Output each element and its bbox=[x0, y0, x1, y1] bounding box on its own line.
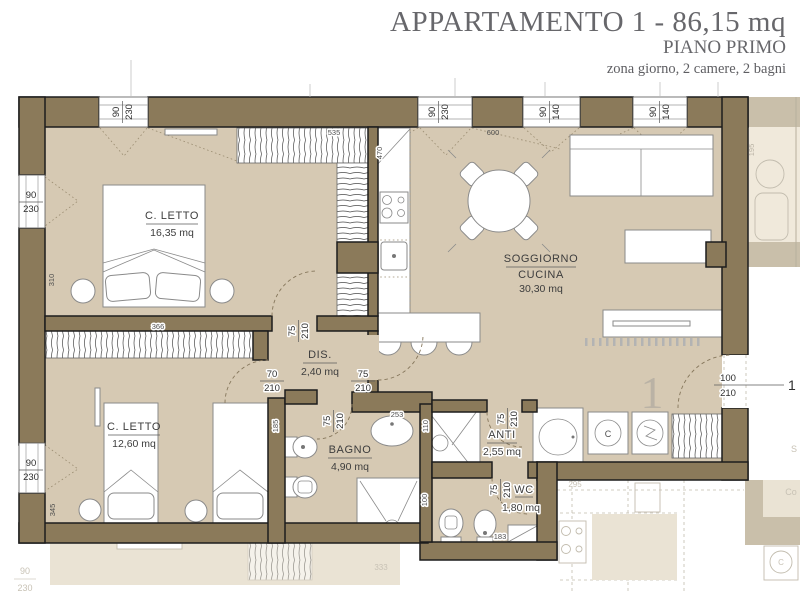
svg-text:C. LETTO: C. LETTO bbox=[145, 210, 199, 222]
pillow bbox=[217, 493, 263, 519]
svg-text:210: 210 bbox=[355, 383, 371, 394]
dim-wardrobe-bedroom2: 366 bbox=[152, 322, 165, 331]
svg-text:90: 90 bbox=[538, 107, 549, 118]
svg-text:210: 210 bbox=[300, 323, 311, 339]
pillow bbox=[155, 272, 201, 302]
svg-text:90: 90 bbox=[26, 190, 37, 201]
unit-number: 1 bbox=[641, 367, 664, 418]
dim-wardrobe-top: 535 bbox=[328, 128, 341, 137]
svg-text:230: 230 bbox=[23, 472, 39, 483]
svg-text:WC: WC bbox=[514, 484, 534, 496]
floor-plan-drawing: C 295 333 90 230 S Co 195 bbox=[0, 0, 800, 592]
svg-text:230: 230 bbox=[440, 104, 451, 120]
radiator bbox=[165, 129, 217, 135]
balcony: 195 bbox=[747, 97, 800, 267]
wardrobe bbox=[337, 163, 368, 242]
svg-text:140: 140 bbox=[661, 104, 672, 120]
svg-text:4,90 mq: 4,90 mq bbox=[331, 461, 369, 473]
svg-text:75: 75 bbox=[322, 416, 333, 427]
page-title: APPARTAMENTO 1 - 86,15 mq bbox=[390, 6, 786, 38]
dim-kitchen-run: 470 bbox=[375, 147, 384, 160]
window bbox=[19, 175, 45, 228]
kitchen-peninsula bbox=[376, 313, 480, 342]
svg-text:75: 75 bbox=[358, 369, 369, 380]
svg-text:210: 210 bbox=[502, 482, 513, 498]
svg-text:16,35 mq: 16,35 mq bbox=[150, 227, 194, 239]
nightstand bbox=[185, 500, 207, 522]
washer-label: C bbox=[605, 429, 612, 439]
sofa bbox=[570, 135, 713, 196]
svg-text:210: 210 bbox=[720, 388, 736, 399]
floor-plan-page: C 295 333 90 230 S Co 195 bbox=[0, 0, 800, 592]
svg-text:90: 90 bbox=[427, 107, 438, 118]
nightstand bbox=[71, 279, 95, 303]
radiator bbox=[95, 388, 100, 426]
svg-text:30,30 mq: 30,30 mq bbox=[519, 283, 563, 295]
toilet bbox=[439, 509, 463, 537]
ghost-dim-295: 295 bbox=[568, 480, 582, 489]
subtitle: zona giorno, 2 camere, 2 bagni bbox=[607, 61, 786, 77]
wardrobe bbox=[337, 273, 368, 316]
pillow bbox=[105, 272, 151, 302]
window bbox=[633, 97, 687, 127]
svg-text:C. LETTO: C. LETTO bbox=[107, 421, 161, 433]
dim-wc-wall: 100 bbox=[420, 494, 429, 507]
dim-basin: 253 bbox=[391, 410, 404, 419]
toilet bbox=[293, 476, 317, 498]
pillow bbox=[108, 493, 154, 519]
dim-living-wall: 600 bbox=[487, 128, 500, 137]
svg-text:12,60 mq: 12,60 mq bbox=[112, 438, 156, 450]
svg-text:100: 100 bbox=[720, 373, 736, 384]
nightstand bbox=[79, 499, 101, 521]
title-block: APPARTAMENTO 1 - 86,15 mq PIANO PRIMO zo… bbox=[390, 6, 786, 77]
ghost-window-h: 230 bbox=[17, 583, 32, 592]
dim-bedroom1-wall: 310 bbox=[47, 274, 56, 287]
svg-text:BAGNO: BAGNO bbox=[329, 444, 372, 456]
svg-text:70: 70 bbox=[267, 369, 278, 380]
ghost-dim-333: 333 bbox=[374, 563, 388, 572]
svg-text:2,40 mq: 2,40 mq bbox=[301, 366, 339, 378]
dim-anti-shower: 110 bbox=[421, 420, 430, 432]
svg-text:2,55 mq: 2,55 mq bbox=[483, 446, 521, 458]
coffee-table bbox=[625, 230, 711, 263]
svg-text:75: 75 bbox=[287, 326, 298, 337]
svg-text:140: 140 bbox=[551, 104, 562, 120]
ghost-label-s: S bbox=[791, 444, 797, 454]
laundry-counter bbox=[533, 408, 583, 462]
svg-text:1,80 mq: 1,80 mq bbox=[502, 502, 540, 514]
svg-text:210: 210 bbox=[509, 411, 520, 427]
ghost-label-co: Co bbox=[785, 487, 797, 497]
svg-text:DIS.: DIS. bbox=[308, 349, 332, 361]
wardrobe bbox=[237, 128, 368, 163]
wardrobe bbox=[672, 414, 728, 458]
nightstand bbox=[210, 279, 234, 303]
svg-text:CUCINA: CUCINA bbox=[518, 269, 564, 281]
svg-text:ANTI: ANTI bbox=[488, 429, 515, 441]
svg-text:75: 75 bbox=[489, 485, 500, 496]
floor-label: PIANO PRIMO bbox=[663, 37, 786, 58]
svg-text:230: 230 bbox=[124, 104, 135, 120]
svg-text:210: 210 bbox=[335, 413, 346, 429]
dining-table bbox=[468, 170, 530, 232]
ghost-window-w: 90 bbox=[20, 566, 30, 576]
dim-bathroom-wall: 185 bbox=[271, 420, 280, 433]
svg-text:75: 75 bbox=[496, 414, 507, 425]
dim-bedroom2-wall: 345 bbox=[48, 504, 57, 517]
door-opening-living bbox=[367, 335, 379, 380]
svg-text:SOGGIORNO: SOGGIORNO bbox=[504, 253, 578, 265]
washbasin bbox=[371, 416, 413, 446]
svg-text:210: 210 bbox=[264, 383, 280, 394]
tv bbox=[613, 321, 690, 326]
svg-text:230: 230 bbox=[23, 204, 39, 215]
ghost-washer-label: C bbox=[778, 558, 784, 567]
entry-reference-number: 1 bbox=[788, 377, 796, 393]
svg-text:90: 90 bbox=[111, 107, 122, 118]
svg-text:90: 90 bbox=[26, 458, 37, 469]
wardrobe bbox=[45, 331, 265, 358]
svg-text:90: 90 bbox=[648, 107, 659, 118]
dim-wc-shelf: 183 bbox=[494, 532, 507, 541]
